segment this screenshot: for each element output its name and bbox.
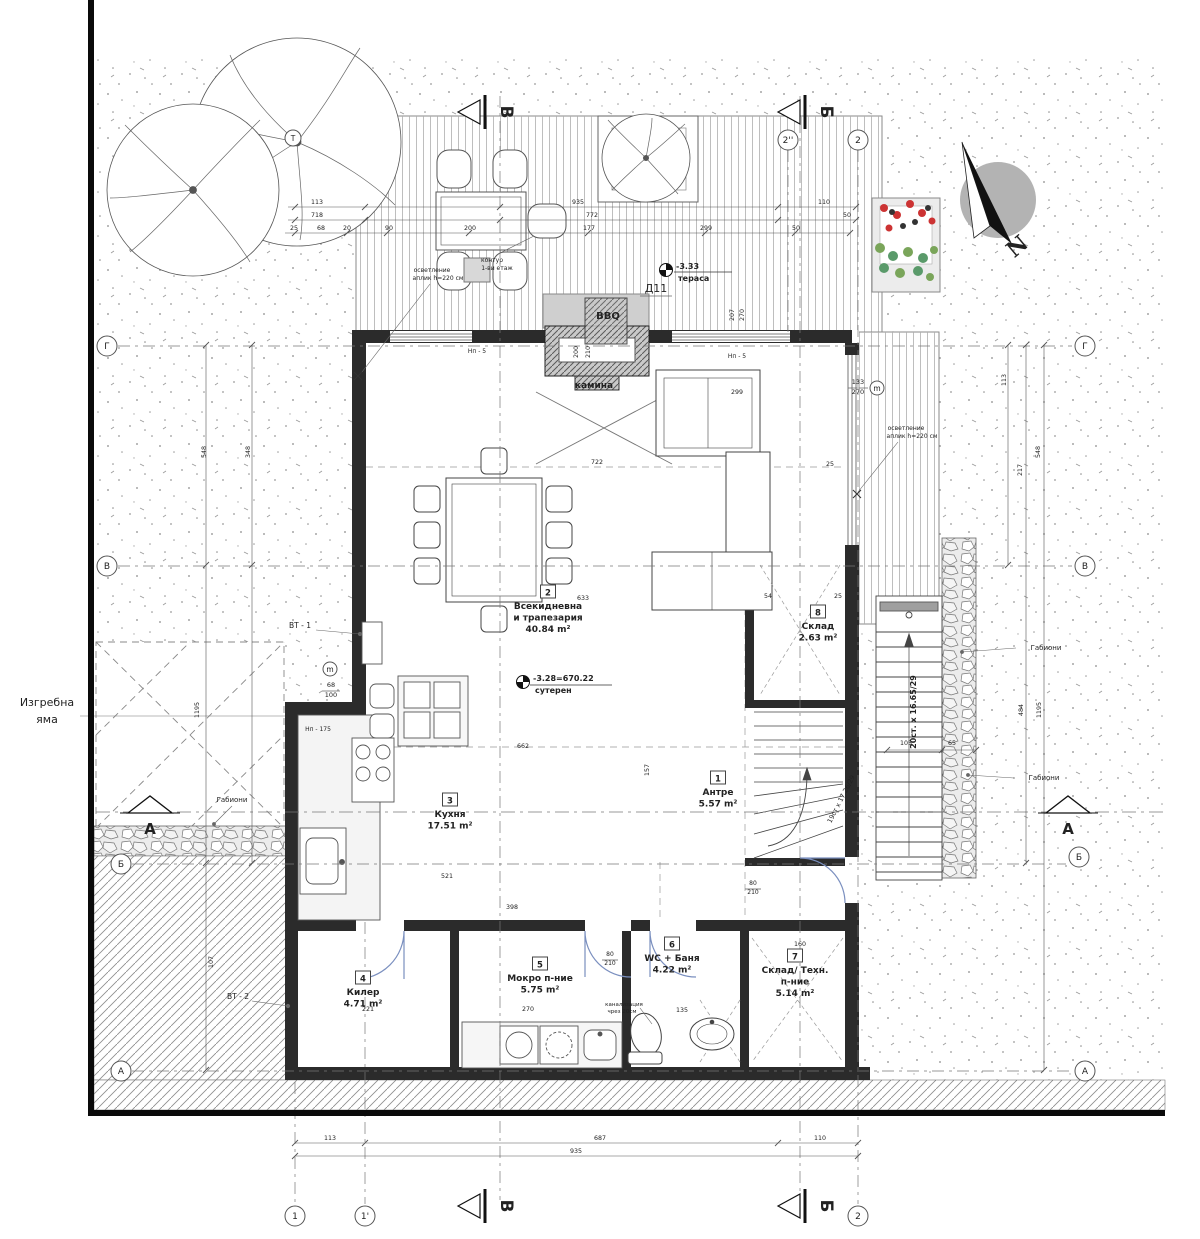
section-letter: Б [816, 106, 836, 119]
room-area: 5.75 m² [521, 986, 560, 996]
room-name: Мокро п-ние [507, 974, 573, 984]
floor-plan-canvas: N [0, 0, 1200, 1239]
room-area: 40.84 m² [526, 625, 571, 635]
gabion-wall-right [942, 538, 976, 878]
grid-bubble-label: В [1082, 562, 1088, 572]
note-label: Нп - 5 [468, 348, 486, 355]
grid-bubble: А [111, 1061, 131, 1081]
note-label: канализация [605, 1002, 643, 1008]
note-label: осветление [888, 425, 925, 432]
bottom-slope-band [94, 1080, 1165, 1110]
dimension-label: 25 [290, 225, 298, 232]
room-area: 4.22 m² [653, 966, 692, 976]
dimension-label: 110 [818, 199, 830, 206]
grid-bubble: В [1075, 556, 1095, 576]
grid-bubble: Б [111, 854, 131, 874]
dimension-label: 113 [311, 199, 323, 206]
room-number: 7 [792, 953, 798, 963]
note-label: 210 [604, 960, 616, 967]
dimension-label: 548 [201, 446, 208, 458]
room-number: 6 [669, 941, 675, 951]
grid-bubble: Т [285, 130, 301, 146]
section-marker: Б [778, 1189, 836, 1223]
grid-bubble-label: m [326, 665, 333, 674]
section-marker: В [458, 1189, 516, 1223]
room-area: 5.57 m² [699, 800, 738, 810]
dimension-label: 200 [464, 225, 476, 232]
note-label: чрез 20см [608, 1009, 637, 1015]
grid-bubble-label: 2'' [783, 136, 794, 146]
dimension-label: 113 [1001, 374, 1008, 386]
section-letter: В [496, 106, 516, 119]
dimension-label: 1195 [194, 702, 201, 718]
dimension-label: 68 [317, 225, 325, 232]
grid-bubble-label: Г [1082, 342, 1088, 352]
dimension-label: 65 [948, 740, 956, 747]
grid-bubble: В [97, 556, 117, 576]
section-letter: А [1062, 820, 1074, 838]
room-area: 5.14 m² [776, 989, 815, 999]
room-name: Килер [347, 988, 380, 998]
dimension-label: 113 [324, 1135, 336, 1142]
dimension-label: 50 [792, 225, 800, 232]
room-number: 3 [447, 797, 453, 807]
grid-bubble-label: 2 [855, 1212, 861, 1222]
note-label: контур [481, 257, 503, 264]
grid-bubble: 2 [848, 1206, 868, 1226]
grid-bubble-label: 2 [855, 136, 861, 146]
dimension-label: 718 [311, 212, 323, 219]
room-name: Антре [703, 788, 734, 798]
note-label: 68 [327, 681, 335, 689]
note-label: 270 [852, 388, 864, 396]
room-name: п-ние [781, 978, 810, 988]
note-label: 100 [325, 691, 337, 699]
grid-bubble: 1' [355, 1206, 375, 1226]
room-name: и трапезария [513, 614, 583, 624]
grid-bubble-label: А [1082, 1067, 1089, 1077]
floor-plan-svg: N [0, 0, 1200, 1239]
cesspool-area [96, 642, 284, 828]
dimension-label: 772 [586, 212, 598, 219]
dimension-label: 157 [644, 764, 651, 776]
dimension-label: 548 [1035, 446, 1042, 458]
grid-bubble-label: Г [104, 342, 110, 352]
room-name: WC + Баня [644, 954, 699, 964]
wc-sink-icon [690, 1018, 734, 1050]
laundry-appliances [462, 1022, 622, 1068]
level-name: сутерен [535, 686, 572, 695]
tree-3 [598, 114, 698, 202]
grid-bubble: m [870, 381, 884, 395]
note-label: 210 [747, 889, 759, 896]
washer-icon [506, 1032, 532, 1058]
dimension-label: 50 [843, 212, 851, 219]
dimension-label: 217 [1017, 464, 1024, 476]
dimension-label: 633 [577, 595, 589, 602]
section-letter: Б [816, 1200, 836, 1213]
room-name: Всекидневна [514, 602, 582, 612]
grid-bubble-label: Б [118, 860, 124, 870]
slope-hatch [94, 856, 286, 1080]
grid-bubble-label: Б [1076, 853, 1082, 863]
note-label: Нп - 175 [305, 726, 331, 733]
grid-bubble-label: 1 [292, 1212, 298, 1222]
flower-planter [872, 198, 940, 292]
dimension-label: 662 [517, 743, 529, 750]
note-label: яма [36, 713, 58, 726]
level-value: -3.28=670.22 [533, 674, 594, 683]
note-label: Габиони [1029, 774, 1060, 782]
grid-bubble: Г [97, 336, 117, 356]
grid-bubble: 2'' [778, 130, 798, 150]
grid-bubble: Г [1075, 336, 1095, 356]
room-area: 2.63 m² [799, 634, 838, 644]
grid-bubble-label: Т [290, 134, 296, 143]
note-label: аплик h=220 см [413, 275, 464, 282]
dimension-label: 160 [794, 941, 806, 948]
room-name: Склад [802, 622, 835, 632]
level-value: -3.33 [676, 262, 699, 271]
level-name: тераса [678, 274, 709, 283]
note-label: камина [575, 381, 613, 391]
section-letter: В [496, 1200, 516, 1213]
grid-bubble: 2 [848, 130, 868, 150]
note-label: Изгребна [20, 696, 74, 709]
dimension-label: 90 [385, 225, 393, 232]
dimension-label: 1195 [1036, 702, 1043, 718]
note-label: 133 [852, 378, 864, 386]
dimension-label: 110 [814, 1135, 826, 1142]
note-label: 80 [606, 951, 614, 958]
dimension-label: 484 [1018, 704, 1025, 716]
dryer-icon [546, 1032, 572, 1058]
room-number: 5 [537, 961, 543, 971]
dimension-label: 210 [585, 346, 592, 358]
dimension-label: 20 [343, 225, 351, 232]
note-label: аплик h=220 см [887, 433, 938, 440]
room-name: Склад/ Техн. [762, 966, 829, 976]
dimension-label: 200 [573, 346, 580, 358]
dimension-label: 687 [594, 1135, 606, 1142]
dimension-label: 221 [362, 1006, 374, 1013]
dimension-label: 135 [676, 1007, 688, 1014]
grid-bubble: Б [1069, 847, 1089, 867]
dimension-label: 54 [764, 593, 772, 600]
note-label: Нп - 5 [728, 353, 746, 360]
grid-bubble-label: m [873, 384, 880, 393]
dimension-label: 398 [506, 904, 518, 911]
grid-bubble: m [323, 662, 337, 676]
dimension-label: 25 [826, 461, 834, 468]
grid-bubble-label: А [118, 1067, 125, 1077]
room-number: 2 [545, 589, 551, 599]
room-number: 4 [360, 975, 366, 985]
tree-2 [107, 104, 279, 276]
grid-bubble-label: В [104, 562, 110, 572]
grid-bubble: А [1075, 1061, 1095, 1081]
note-label: Габиони [217, 796, 248, 804]
grid-bubble-label: 1' [361, 1212, 369, 1222]
dimension-label: 207 [729, 309, 736, 321]
room-area: 17.51 m² [428, 822, 473, 832]
note-label: 80 [749, 880, 757, 887]
note-label: ВТ - 2 [227, 992, 249, 1001]
dimension-label: 177 [583, 225, 595, 232]
dimension-label: 299 [731, 389, 743, 396]
note-label: ВТ - 1 [289, 621, 311, 630]
dimension-label: 25 [834, 593, 842, 600]
dimension-label: 107 [208, 956, 215, 968]
note-label: BBQ [596, 311, 620, 322]
room-name: Кухня [434, 810, 465, 820]
note-label: 1-ви етаж [481, 265, 513, 272]
room-number: 1 [715, 775, 721, 785]
dimension-label: 270 [739, 309, 746, 321]
note-label: Габиони [1031, 644, 1062, 652]
note-label: осветление [414, 267, 451, 274]
dimension-label: 299 [700, 225, 712, 232]
note-label: Д11 [645, 282, 668, 295]
dimension-label: 270 [522, 1006, 534, 1013]
dimension-label: 935 [572, 199, 584, 206]
dimension-label: 348 [245, 446, 252, 458]
section-letter: А [144, 820, 156, 838]
dimension-label: 935 [570, 1148, 582, 1155]
gabion-wall-left [94, 826, 286, 856]
note-label: 20ст. x 16.65/29 [909, 675, 918, 749]
grid-bubble: 1 [285, 1206, 305, 1226]
dimension-label: 521 [441, 873, 453, 880]
room-number: 8 [815, 609, 821, 619]
dimension-label: 722 [591, 459, 603, 466]
